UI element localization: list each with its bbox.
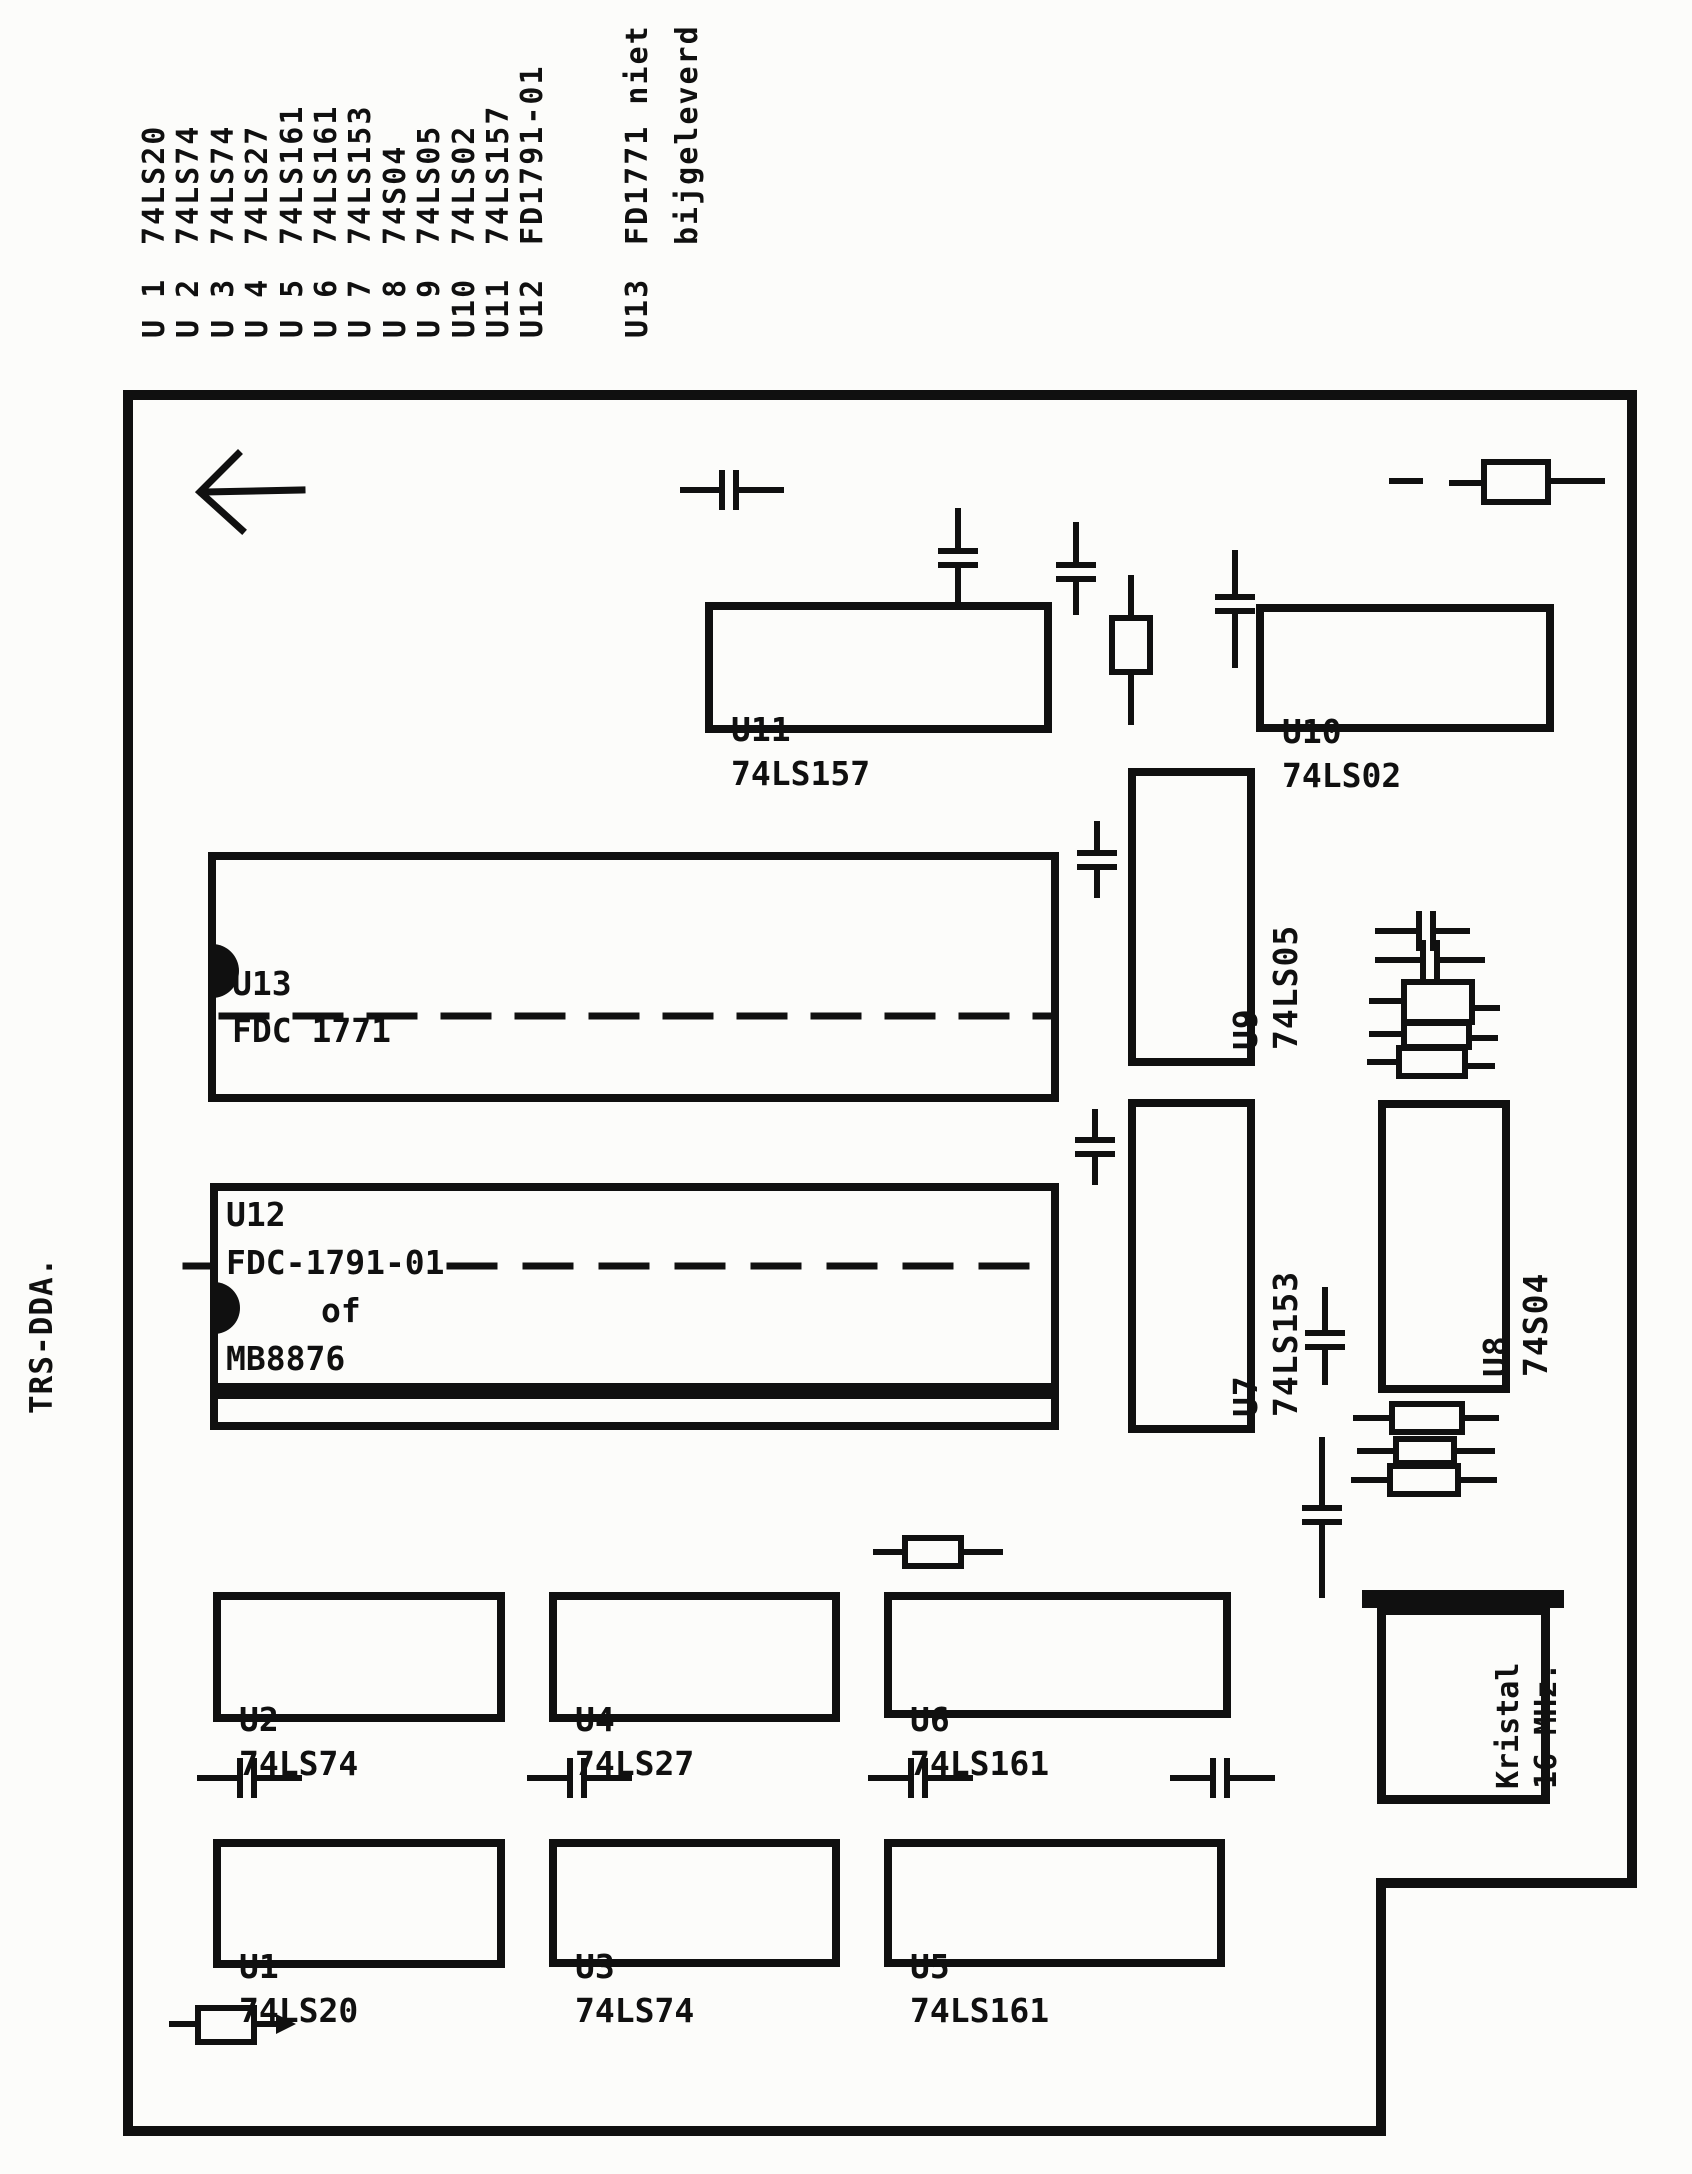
legend-ref: U 6	[310, 265, 344, 338]
legend-ref: U11	[482, 265, 516, 338]
chip-u3: U374LS74	[549, 1839, 840, 1967]
legend-ref: U 5	[276, 265, 310, 338]
capacitor-icon	[683, 473, 781, 507]
capacitor-icon	[941, 511, 975, 600]
chip-label: U474LS27	[557, 1600, 832, 1874]
legend-part: 74LS153	[344, 30, 378, 245]
legend-part: 74LS27	[241, 30, 275, 245]
chip-label: U174LS20	[221, 1847, 497, 2121]
resistor-icon	[1392, 462, 1602, 502]
legend-part: bijgeleverd	[671, 30, 705, 245]
chip-label: U774LS153	[1148, 1117, 1384, 1417]
chip-u2: U274LS74	[213, 1592, 505, 1722]
chip-u7: U774LS153	[1128, 1099, 1255, 1433]
chip-label: U1174LS157	[713, 610, 1044, 884]
legend-part: 74LS74	[172, 30, 206, 245]
capacitor-icon	[1059, 525, 1093, 612]
legend-part: 74LS157	[482, 30, 516, 245]
chip-u10: U1074LS02	[1256, 604, 1554, 732]
legend-ref: U 7	[344, 265, 378, 338]
legend-ref: U13	[621, 265, 655, 338]
capacitor-icon	[1378, 943, 1482, 977]
chip-label: U674LS161	[892, 1600, 1223, 1874]
resistor-icon	[1112, 578, 1150, 722]
legend-part: 74S04	[379, 30, 413, 245]
chip-label: U13FDC 1771	[216, 860, 1051, 1148]
chip-u12-socket-strip	[210, 1391, 1059, 1430]
legend-ref: U 2	[172, 265, 206, 338]
legend-ref: U 3	[207, 265, 241, 338]
chip-u11: U1174LS157	[705, 602, 1052, 733]
legend-ref: U 1	[138, 265, 172, 338]
legend-part: FD1771 niet	[621, 30, 655, 245]
legend-part: 74LS161	[276, 30, 310, 245]
legend-part: 74LS02	[448, 30, 482, 245]
chip-u4: U474LS27	[549, 1592, 840, 1722]
legend-ref: U12	[516, 265, 550, 338]
legend-ref: U 9	[413, 265, 447, 338]
chip-u13: U13FDC 1771	[208, 852, 1059, 1102]
capacitor-icon	[1078, 1112, 1112, 1182]
chip-u6: U674LS161	[884, 1592, 1231, 1718]
left-arrow-icon	[200, 454, 302, 530]
chip-label: U874S04	[1398, 1117, 1634, 1377]
legend-part: 74LS20	[138, 30, 172, 245]
legend-ref: U10	[448, 265, 482, 338]
chip-label: U974LS05	[1148, 825, 1384, 1050]
crystal-label: Kristal16 MHz.	[1420, 1613, 1636, 1789]
chip-u5: U574LS161	[884, 1839, 1225, 1967]
chip-label: U274LS74	[221, 1600, 497, 1874]
legend-part: 74LS161	[310, 30, 344, 245]
capacitor-icon	[1080, 824, 1114, 895]
page-title: TRS-DDA.	[24, 1262, 60, 1414]
scanned-board-layout-page: U 1 74LS20 U 2 74LS74 U 3 74LS74 U 4 74L…	[0, 0, 1692, 2174]
legend-part: 74LS05	[413, 30, 447, 245]
crystal: Kristal16 MHz.	[1377, 1606, 1550, 1804]
resistor-icon	[1370, 1048, 1492, 1076]
chip-label: U12 FDC-1791-01 of MB8876	[218, 1191, 1051, 1383]
chip-u1: U174LS20	[213, 1839, 505, 1968]
resistor-icon	[1372, 982, 1497, 1022]
capacitor-icon	[1218, 553, 1252, 665]
legend-part: 74LS74	[207, 30, 241, 245]
chip-label: U374LS74	[557, 1847, 832, 2121]
capacitor-icon	[1378, 914, 1467, 948]
chip-u9: U974LS05	[1128, 768, 1255, 1066]
resistor-icon	[1360, 1439, 1492, 1463]
chip-u12: U12 FDC-1791-01 of MB8876	[210, 1183, 1059, 1391]
resistor-icon	[1372, 1023, 1495, 1047]
chip-label: U574LS161	[892, 1847, 1217, 2121]
legend-ref: U 8	[379, 265, 413, 338]
capacitor-icon	[1305, 1440, 1339, 1595]
resistor-icon	[876, 1538, 1000, 1566]
legend-ref: U 4	[241, 265, 275, 338]
chip-u8: U874S04	[1378, 1100, 1510, 1393]
resistor-icon	[1354, 1466, 1494, 1494]
legend-part: FD1791-01	[516, 30, 550, 245]
